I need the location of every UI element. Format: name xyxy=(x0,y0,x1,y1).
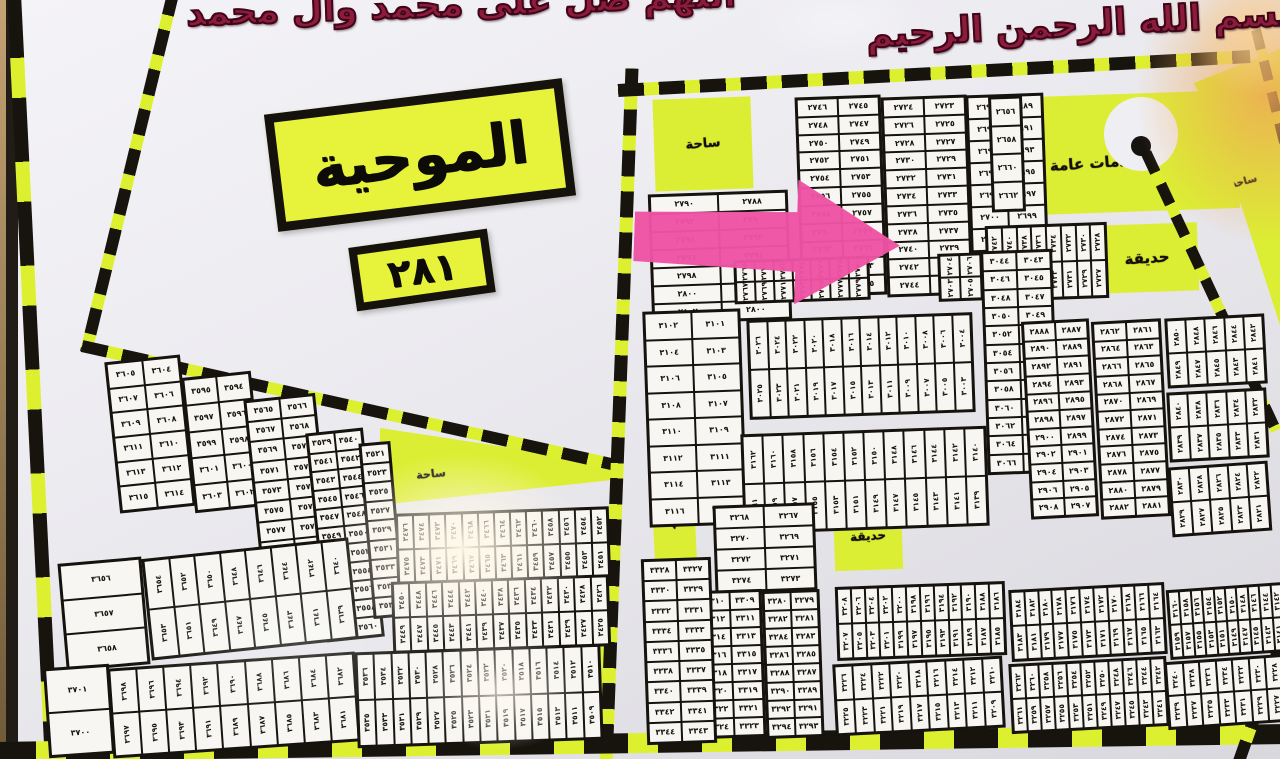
plot-number: ٣٢٦٨ xyxy=(730,513,750,522)
plot-number: ٣٥٣١ xyxy=(398,712,406,731)
plot: ٣٥٢٩ xyxy=(368,520,395,539)
plot-number: ٣٢٥٧ xyxy=(1044,704,1052,723)
plot-number: ٢٨٩٥ xyxy=(1065,396,1085,405)
plot: ٣١٥١ xyxy=(1217,622,1229,654)
plot-number: ٢٧٢٦ xyxy=(894,121,914,130)
plot: ٣٥٦٥ xyxy=(247,400,281,421)
plot: ٣٢٣١ xyxy=(1235,691,1252,722)
plot-number: ٣١٦٢ xyxy=(749,451,757,470)
plot: ٣١٤٥ xyxy=(906,479,926,526)
plot-number: ٣٢٤٢ xyxy=(1154,666,1162,685)
plot-number: ٣٦٩٤ xyxy=(174,678,183,697)
plot-number: ٣١٩٦ xyxy=(923,594,931,613)
plot-number: ٢٨٧٥ xyxy=(1139,449,1159,458)
plot-number: ٣٢٠٦ xyxy=(854,596,862,615)
plot: ٣٢١٧ xyxy=(911,697,929,730)
plot-number: ٣٦٥٠ xyxy=(205,569,214,588)
plot: ٣٦٨٨ xyxy=(246,660,274,703)
plot-number: ٣٢٧١ xyxy=(780,553,800,562)
plot: ٢٨٢٦ xyxy=(1209,466,1228,498)
plot-block-RL8: ٣١٦٠٣١٥٨٣١٥٦٣١٥٤٣١٥٢٣١٥٠٣١٤٨٣١٤٦٣١٤٤٣١٤٢… xyxy=(1166,582,1280,660)
plot-number: ٢٨٦٩ xyxy=(1137,396,1157,405)
plot-number: ٣١٨٧ xyxy=(980,627,988,646)
plot: ٣١٩٦ xyxy=(921,587,934,620)
plot-number: ٣٤٤٤ xyxy=(447,589,455,608)
plot: ٣٦٠١ xyxy=(193,456,226,484)
plot-number: ٣١٥٩ xyxy=(1173,632,1182,651)
plot: ٣٦٤٧ xyxy=(226,600,254,649)
plot: ٢٨٣٢ xyxy=(1246,391,1265,423)
plot-number: ٢٧٣٩ xyxy=(939,244,959,253)
plot-number: ٢٨٦٣ xyxy=(1134,343,1154,352)
plot: ٢٨٢٤ xyxy=(1228,465,1247,497)
plot-block-M3: ٣٤٥٠٣٤٤٨٣٤٤٦٣٤٤٤٣٤٤٢٣٤٤٠٣٤٣٨٣٤٣٦٣٤٣٤٣٤٣٢… xyxy=(391,574,611,654)
plot: ٢٧٥٢ xyxy=(800,152,840,169)
plot-number: ٢٨٨٧ xyxy=(1061,326,1081,335)
plot-number: ٢٧٢٩ xyxy=(936,155,956,164)
plot-number: ٢٩٠٦ xyxy=(1038,486,1058,495)
plot-number: ٣٢٩٠ xyxy=(771,687,791,696)
plot-number: ٢٧٠٥ xyxy=(967,278,975,297)
plot-number: ٣٥٣٣ xyxy=(375,563,395,573)
plot: ٣٥٦٧ xyxy=(249,420,283,441)
plot-number: ٣١٤٩ xyxy=(872,494,880,513)
plot: ٣٥١٧ xyxy=(515,695,532,740)
plot: ٣٦٩٧ xyxy=(113,713,141,756)
plot-number: ٣٢٠١ xyxy=(883,630,891,649)
plot-number: ٣١٧١ xyxy=(1098,629,1106,648)
plot: ٣٦٨٧ xyxy=(249,703,277,746)
plot: ٣٦٨٥ xyxy=(276,701,304,744)
plot: ٣٢٤١ xyxy=(1153,692,1167,724)
plot-number: ٢٨٣٩ xyxy=(1176,434,1184,453)
plot: ٣٢١٩ xyxy=(892,698,910,731)
plot-number: ٣٥١٣ xyxy=(553,707,561,726)
plot-number: ٣١٦٥ xyxy=(1140,627,1148,646)
plot-number: ٣٢٤٦ xyxy=(1126,667,1134,686)
plot-number: ٢٨٨٢ xyxy=(1109,503,1129,512)
zone-label-garden-north: حديقة xyxy=(1124,247,1170,268)
plot-number: ٣١٥٢ xyxy=(850,447,858,466)
plot-number: ٣٤٧٢ xyxy=(434,522,442,541)
plot-number: ٢٧٧٩ xyxy=(855,279,863,298)
plot: ٣٠٥٦ xyxy=(987,363,1020,380)
plot-number: ٣٢٣٦ xyxy=(1204,668,1213,687)
plot-row: ٣٢٦١٣٢٥٩٣٢٥٧٣٢٥٥٣٢٥٣٣٢٥١٣٢٤٩٣٢٤٧٣٢٤٥٣٢٤٣… xyxy=(1013,692,1166,731)
plot-number: ٣٤٤٣ xyxy=(448,623,456,642)
plot: ٣١٠٨ xyxy=(648,393,694,419)
plot: ٣٣٤٢ xyxy=(649,703,681,722)
plot: ٢٧٦٧ xyxy=(737,283,754,302)
plot: ٣١٩٩ xyxy=(894,623,907,656)
plot-number: ٣١٤٧ xyxy=(1241,627,1250,646)
plot-number: ٢٧٠٦ xyxy=(966,256,974,275)
plot-number: ٣٥٢٣ xyxy=(467,710,475,729)
plot: ٣٠٠٩ xyxy=(899,365,917,412)
plot-number: ٣٠٢٣ xyxy=(775,384,783,403)
plot-row: ٢٨٥٠٢٨٤٨٢٨٤٦٢٨٤٤٢٨٤٢ xyxy=(1167,317,1262,353)
plot-number: ٣٥٤٣ xyxy=(316,476,336,486)
plot-number: ٣٤٦٧ xyxy=(467,555,475,574)
plot-number: ٣٠٠٧ xyxy=(922,378,930,397)
plot: ٣٣٤٤ xyxy=(650,723,682,742)
plot: ٣٠٤٨ xyxy=(984,290,1017,307)
plot-row: ٣١٦٠٣١٥٨٣١٥٦٣١٥٤٣١٥٢٣١٥٠٣١٤٨٣١٤٦٣١٤٤٣١٤٢ xyxy=(1169,585,1280,624)
plot: ٣٦٨٣ xyxy=(303,699,331,742)
plot-column: ٣٢٦٧٣٢٦٩٣٢٧١٣٢٧٣ xyxy=(765,505,815,589)
plot-number: ٣٢٢٥ xyxy=(842,707,850,726)
plot-number: ٣١٩٧ xyxy=(911,629,919,648)
plot: ٣١٧٦ xyxy=(1067,589,1080,622)
plot-number: ٣٢٠٢ xyxy=(882,595,890,614)
plot: ٢٨٤٩ xyxy=(1169,354,1188,386)
plot-number: ٣١٤٤ xyxy=(1261,592,1270,611)
plot: ٣٢٨٨ xyxy=(767,665,793,682)
plot-number: ٣٣٤٣ xyxy=(688,727,708,736)
plot: ٣٢٠١ xyxy=(881,623,894,656)
plot: ٣٢٧٣ xyxy=(767,568,815,589)
plot: ٣٢٠٩ xyxy=(984,693,1002,726)
plot-number: ٣٥٢٨ xyxy=(431,665,439,684)
plot-number: ٣٤٥٣ xyxy=(580,551,588,570)
plot: ٢٧٣٢ xyxy=(886,170,926,187)
plot-number: ٢٨٢٧ xyxy=(1198,507,1207,526)
plot-number: ٣٢٢٠ xyxy=(895,671,903,690)
plot-number: ٣٥٢٠ xyxy=(500,663,508,682)
plot: ٣٤٢٥ xyxy=(593,611,609,643)
plot-number: ٣٠٠٩ xyxy=(904,379,912,398)
plot: ٣٤٧٥ xyxy=(399,550,414,582)
plot-number: ٣٢٠٣ xyxy=(869,631,877,650)
plot-number: ٣٣٤٠ xyxy=(654,688,674,697)
plot: ٣٠٠٦ xyxy=(934,316,952,363)
plot: ٣٦٨٤ xyxy=(300,657,328,700)
plot: ٣٢٥٢ xyxy=(1081,663,1095,695)
plot-number: ٣٢٦٧ xyxy=(778,511,798,520)
plot: ٣٤٥٤ xyxy=(576,510,591,542)
plot-number: ٣٥٢١ xyxy=(365,449,385,459)
plot-number: ٣١٠٤ xyxy=(659,348,679,357)
plot: ٣١٧٥ xyxy=(1068,623,1081,656)
plot: ٣٠١٧ xyxy=(825,368,843,415)
plot-number: ٣١٥٥ xyxy=(1195,630,1204,649)
plot: ٣١٩٨ xyxy=(907,587,920,620)
plot: ٣٥١٠ xyxy=(582,647,599,692)
plot: ٢٨٢٧ xyxy=(1192,501,1211,533)
plot: ٣٣١٩ xyxy=(734,682,763,699)
plot-number: ٣٥١٤ xyxy=(552,661,560,680)
plot: ٢٨٤٢ xyxy=(1244,317,1263,349)
plot-number: ٣١٧٢ xyxy=(1097,595,1105,614)
plot-block-RM2: ٣٠٢٦٣٠٢٤٣٠٢٢٣٠٢٠٣٠١٨٣٠١٦٣٠١٤٣٠١٢٣٠١٠٣٠٠٨… xyxy=(746,312,975,420)
plot: ٣٤٣٩ xyxy=(477,615,493,647)
plot: ٣٠١٠ xyxy=(897,317,915,364)
plot-number: ٣٢١٣ xyxy=(952,702,960,721)
plot: ٣٥٤١ xyxy=(310,452,337,471)
plot: ٣١٦٢ xyxy=(743,437,763,484)
plot-number: ٣٦٤٣ xyxy=(286,610,295,629)
plot-number: ٣٢١٥ xyxy=(934,703,942,722)
plot-number: ٣٣٣١ xyxy=(684,606,704,615)
plot: ٣٢٠٨ xyxy=(838,589,851,622)
plot: ٢٧٣٥ xyxy=(928,204,968,221)
plot-number: ٣١٨٥ xyxy=(994,627,1002,646)
plot: ٣٤٥٩ xyxy=(528,546,543,578)
plot: ٣١٠٩ xyxy=(696,417,742,443)
plot: ٣٢٨٥ xyxy=(793,646,819,663)
plot: ٣٠٥٠ xyxy=(985,308,1018,325)
plot-number: ٢٧٢٥ xyxy=(935,120,955,129)
plot-number: ٣٥٤١ xyxy=(314,457,334,467)
plot-block-LB4: ٣٥٣٦٣٥٣٤٣٥٣٢٣٥٣٠٣٥٢٨٣٥٢٦٣٥٢٤٣٥٢٢٣٥٢٠٣٥١٨… xyxy=(354,644,603,749)
plot-number: ٣١٥٦ xyxy=(810,448,818,467)
plot: ٢٨٤٦ xyxy=(1206,319,1225,351)
plot: ٢٧٣١ xyxy=(927,169,967,186)
plot-number: ٣١٤٥ xyxy=(912,493,920,512)
plot-row: ٣٢٢٥٣٢٢٣٣٢٢١٣٢١٩٣٢١٧٣٢١٥٣٢١٣٣٢١١٣٢٠٩ xyxy=(837,693,1002,734)
plot: ٢٨٩٣ xyxy=(1059,374,1090,391)
plot-number: ٣١٠٦ xyxy=(660,375,680,384)
plot-number: ٢٨٩٣ xyxy=(1064,378,1084,387)
plot-number: ٢٨٩٩ xyxy=(1067,431,1087,440)
plot: ٣٤٥٠ xyxy=(394,584,410,616)
plot-number: ٢٩٠٥ xyxy=(1070,484,1090,493)
plot-column: ٢٦٥٦٢٦٥٨٢٦٦٠٢٦٦٢ xyxy=(991,99,1023,210)
plot-number: ٣٤٦١ xyxy=(516,553,524,572)
plot: ٢٨٩٤ xyxy=(1027,376,1058,393)
plot: ٣٦٤٤ xyxy=(271,546,299,595)
plot-number: ٣٣١٧ xyxy=(737,668,757,677)
plot: ٣٥٣٢ xyxy=(392,653,409,698)
plot: ٣٦١٠ xyxy=(151,431,187,457)
plot: ٣١٤٣ xyxy=(927,478,947,525)
plot-number: ٣٦١٥ xyxy=(128,492,148,502)
plot: ٣٠٦٦ xyxy=(990,455,1023,472)
plot: ٣١٧٤ xyxy=(1080,589,1093,622)
plot-number: ٣٠٥٨ xyxy=(994,386,1014,395)
plot-number: ٢٦٩٩ xyxy=(1017,212,1037,221)
plot-number: ٣٢٨١ xyxy=(795,614,815,623)
plot-number: ٣٤٥٨ xyxy=(547,518,555,537)
plot-number: ٣٦٩٨ xyxy=(120,682,129,701)
plot: ٣٠٢٢ xyxy=(786,321,804,368)
plot: ٣١٤٠ xyxy=(965,429,985,476)
plot-number: ٢٧٠٠ xyxy=(980,213,1000,222)
plot: ٣٦٠٨ xyxy=(149,407,185,433)
plot: ٣٦٠٥ xyxy=(108,362,144,388)
plot: ٢٨٦٤ xyxy=(1095,341,1127,358)
plot: ٣٤٣٢ xyxy=(542,579,558,611)
plot-number: ٣٤٥٦ xyxy=(563,517,571,536)
plot-number: ٣٦٠٧ xyxy=(118,394,138,404)
plot: ٣٧٠٠ xyxy=(49,710,112,755)
plot-number: ٣١٥٢ xyxy=(1216,596,1225,615)
plot: ٢٦٦٠ xyxy=(993,155,1022,182)
plot: ٣٣٢٧ xyxy=(677,560,709,579)
plot-number: ٣٠١٣ xyxy=(867,380,875,399)
plot-number: ٣١٥٤ xyxy=(830,448,838,467)
plot-number: ٣٠١٤ xyxy=(865,332,873,351)
plot-number: ٢٧٢٧ xyxy=(936,138,956,147)
plot-number: ٣٣٣٠ xyxy=(650,587,670,596)
plot: ٢٩٠٥ xyxy=(1064,480,1095,497)
plot-number: ٣٠٤٤ xyxy=(990,257,1010,266)
plot: ٢٨٢٣ xyxy=(1231,498,1250,530)
plot-number: ٣٢٩٤ xyxy=(772,723,792,732)
plot-column: ٢٧٢٤٢٧٢٦٢٧٢٨٢٧٣٠٢٧٣٢٢٧٣٤٢٧٣٦٢٧٣٨٢٧٤٠٢٧٤٢… xyxy=(884,99,930,294)
plot: ٣١٨٨ xyxy=(976,585,989,618)
plot-number: ٣٠١٥ xyxy=(849,381,857,400)
plot-row: ٢٨٤٠٢٨٣٨٢٨٣٦٢٨٣٤٢٨٣٢ xyxy=(1169,391,1264,427)
plot-number: ٣٢٦١ xyxy=(1016,706,1024,725)
plot: ٢٧٤٨ xyxy=(798,117,838,134)
plot-number: ٣٥٤٧ xyxy=(319,513,339,523)
plot: ٣٤٣٤ xyxy=(526,580,542,612)
plot: ٣٢٤٢ xyxy=(1151,659,1165,691)
plot: ٢٧٠٤ xyxy=(940,256,959,277)
plot-number: ٢٨٧٢ xyxy=(1105,415,1125,424)
plot-number: ٣٦٠١ xyxy=(199,465,219,475)
plot-number: ٣٤٧٦ xyxy=(401,523,409,542)
plot-row: ٣١٥٩٣١٥٧٣١٥٥٣١٥٣٣١٥١٣١٤٩٣١٤٧٣١٤٥٣١٤٣٣١٤١ xyxy=(1171,618,1280,657)
plot: ٣٣٠٩ xyxy=(731,592,760,609)
plot-number: ٣٤٧٠ xyxy=(450,521,458,540)
plot: ٣١٥٧ xyxy=(1183,624,1195,656)
plot-column: ٣٢٦٨٣٢٧٠٣٢٧٢٣٢٧٤ xyxy=(716,507,766,591)
plot: ٢٧٢٧ xyxy=(1092,261,1106,295)
plot-number: ٣٢١١ xyxy=(971,701,979,720)
plot-number: ٣٤٢٥ xyxy=(596,618,604,637)
plot-number: ٣٢٥١ xyxy=(1086,702,1094,721)
plot: ٣٤٤٦ xyxy=(427,583,443,615)
plot: ٣٣٣٥ xyxy=(680,641,712,660)
plot: ٢٨٣٨ xyxy=(1189,394,1208,426)
plot-number: ٢٨٧٣ xyxy=(1138,431,1158,440)
plot-number: ٢٨٧٦ xyxy=(1106,451,1126,460)
plot: ٣٥٢٠ xyxy=(496,650,513,695)
plot-number: ٢٨٤٤ xyxy=(1230,324,1238,343)
plot: ٣٣٣٠ xyxy=(645,581,677,600)
plot: ٣٢٢١ xyxy=(874,699,892,732)
plot: ٣٢٣٩ xyxy=(1169,696,1186,727)
plot-number: ٣٢٥٢ xyxy=(1084,669,1092,688)
plot-number: ٣٦٨٩ xyxy=(231,717,240,736)
plot-number: ٣٥٦٩ xyxy=(258,446,278,456)
plot: ٣١٤٨ xyxy=(1237,588,1249,620)
plot-number: ٣٠١٧ xyxy=(830,382,838,401)
plot: ٣٢٢٨ xyxy=(1266,657,1280,688)
plot-number: ٣١١٤ xyxy=(664,481,684,490)
plot: ٣٥٣٣ xyxy=(376,700,393,745)
plot-number: ٣٠٦٠ xyxy=(995,404,1015,413)
plot: ٣١٤١ xyxy=(947,478,967,525)
plot-number: ٢٨٣٢ xyxy=(1251,397,1259,416)
plot-number: ٣٣٢١ xyxy=(739,704,759,713)
plot: ٣٤٦٠ xyxy=(527,512,542,544)
plot: ٢٨٩٥ xyxy=(1060,392,1091,409)
plot: ٣٢٣٥ xyxy=(1202,694,1219,725)
plot-number: ٣٢١٨ xyxy=(914,670,922,689)
plot-number: ٢٨٨٩ xyxy=(1062,343,1082,352)
plot-number: ٣٦١٠ xyxy=(159,439,179,449)
plot: ٣٦٤٦ xyxy=(246,549,274,598)
plot-number: ٣١٤٨ xyxy=(890,446,898,465)
plot-number: ٣٠٠٥ xyxy=(941,378,949,397)
plot: ٢٧٨٨ xyxy=(719,193,786,211)
plot-number: ٣٣٣٢ xyxy=(651,607,671,616)
plot: ٣٣٤٠ xyxy=(648,682,680,701)
plot: ٣١٠٤ xyxy=(646,340,692,366)
plot-number: ٣٤٤٠ xyxy=(480,588,488,607)
plot-number: ٣٢٢٦ xyxy=(840,674,848,693)
plot: ٣٤٦٢ xyxy=(511,512,526,544)
plot: ٣١٠١ xyxy=(692,311,738,337)
plot-number: ٣٤٦٥ xyxy=(483,554,491,573)
plot-column: ٣٢٨٠٣٢٨٢٣٢٨٤٣٢٨٦٣٢٨٨٣٢٩٠٣٢٩٢٣٢٩٤ xyxy=(765,593,795,736)
plot: ٢٧٥٣ xyxy=(841,169,881,186)
plot: ٣١١٢ xyxy=(650,446,696,472)
plot: ٢٧٤٧ xyxy=(839,115,879,132)
plot-number: ٣٤٣٥ xyxy=(514,621,522,640)
plot: ٣١٥٣ xyxy=(826,482,846,529)
plot: ٣١٧١ xyxy=(1096,622,1109,655)
plot: ٢٨٧٦ xyxy=(1100,446,1132,463)
plot: ٣٢٣٣ xyxy=(1219,692,1236,723)
plot: ٢٩٠٦ xyxy=(1032,482,1063,499)
plot-number: ٢٨٢٦ xyxy=(1214,473,1223,492)
plot: ٣٥٣٥ xyxy=(359,701,376,746)
plot-number: ٣١٦٠ xyxy=(769,450,777,469)
plot-block-RL5: ٣٢٠٨٣٢٠٦٣٢٠٤٣٢٠٢٣٢٠٠٣١٩٨٣١٩٦٣١٩٤٣١٩٢٣١٩٠… xyxy=(835,581,1007,661)
plot-number: ٢٧٣٧ xyxy=(939,227,959,236)
plot-number: ٢٧٣٢ xyxy=(1064,234,1072,253)
plot: ٣٤٣١ xyxy=(543,613,559,645)
plot-number: ٣٥٦٦ xyxy=(287,402,307,412)
plot-number: ٣٢٢٢ xyxy=(877,672,885,691)
plot: ٣٠٦٤ xyxy=(990,436,1023,453)
plot: ٣٥٧١ xyxy=(253,460,287,481)
plot-number: ٣٥٩٤ xyxy=(224,383,244,393)
plot-number: ٣٢٨٤ xyxy=(769,633,789,642)
plot-number: ٣٢٠٠ xyxy=(896,595,904,614)
plot: ٣٤٤٢ xyxy=(460,582,476,614)
plot-number: ٣٦٨٨ xyxy=(255,672,264,691)
plot: ٣٤٢٨ xyxy=(575,578,591,610)
plot-number: ٢٨٩٤ xyxy=(1032,380,1052,389)
plot: ٣٦٥٢ xyxy=(170,557,198,606)
plot-number: ٢٧٣٦ xyxy=(897,210,917,219)
plot-number: ٣١٦٧ xyxy=(1126,627,1134,646)
plot-number: ٣١٧٧ xyxy=(1057,631,1065,650)
plot: ٢٨٧٩ xyxy=(1135,480,1167,497)
plot-number: ٢٨٤٦ xyxy=(1211,325,1219,344)
plot-number: ٢٧٤٥ xyxy=(848,102,868,111)
plot: ٣١٦٧ xyxy=(1124,621,1137,654)
plot: ٢٨٧١ xyxy=(1132,410,1164,427)
plot: ٣٤٣٥ xyxy=(510,614,526,646)
plot: ٣٤٣٦ xyxy=(509,580,525,612)
plot: ٣٥٢٢ xyxy=(478,650,495,695)
plot: ٣٢٥٦ xyxy=(1053,664,1067,696)
plot: ٣٢٣٦ xyxy=(1200,662,1217,693)
plot-number: ٣٤٣٧ xyxy=(498,622,506,641)
plot: ٣٤٦٣ xyxy=(496,547,511,579)
plot-number: ٣٢٢١ xyxy=(879,706,887,725)
plot-number: ٢٨٣٤ xyxy=(1232,398,1240,417)
plot: ٣٥٢٥ xyxy=(445,698,462,743)
plot: ٣٦٠٣ xyxy=(195,483,228,511)
plot-number: ٣٦٩٠ xyxy=(228,674,237,693)
